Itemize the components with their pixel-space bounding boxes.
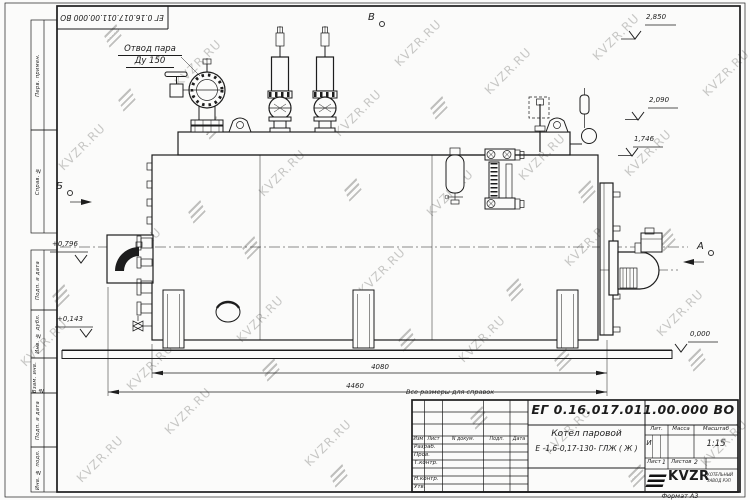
level-0143: +0,143 (57, 316, 83, 323)
mass-header: Масса (668, 427, 694, 433)
doc-number: ЕГ 0.16.017.011.00.000 ВО (530, 403, 736, 416)
kvzr-logo-sub2: ЗАВОД РЭП (707, 479, 731, 483)
view-label-b-mark (67, 190, 73, 196)
row-utv: Утв. (414, 485, 426, 491)
view-label-a-mark (708, 250, 714, 256)
lit-header: Лит. (645, 427, 668, 433)
view-label-v: В (368, 13, 375, 24)
lit-value: И (645, 440, 653, 447)
steam-outlet-callout-line2: Ду 150 (126, 57, 174, 68)
product-name-line2: Е -1,6-0,17-130- ГЛЖ ( Ж ) (528, 445, 645, 453)
water-level-gauge (485, 149, 524, 209)
view-label-a: А (697, 242, 704, 253)
level-1746: 1,746 (634, 136, 654, 143)
pressure-siphon (570, 88, 597, 144)
drawing-linework (0, 0, 750, 500)
safety-valve-1 (268, 26, 292, 135)
manhole (216, 302, 240, 322)
sheet-number: 1 (662, 460, 666, 466)
steam-outlet-valve (165, 57, 225, 135)
elevation-marks (50, 25, 718, 352)
frame-col-podp-data-1: Подп. и дата (31, 250, 44, 310)
view-label-b: Б (56, 182, 63, 193)
ground-line (62, 350, 672, 359)
sheets-label: Листов (671, 460, 692, 466)
frame-col-inv-dubl: Инв. № дубл. (31, 310, 44, 358)
row-prov: Пров. (414, 453, 430, 459)
scale-value: 1:15 (694, 440, 738, 449)
view-label-v-mark (379, 21, 385, 27)
support-skids (163, 290, 578, 348)
separator-vessel (445, 148, 464, 204)
kvzr-logo-text: KVZR (668, 470, 710, 484)
scale-header: Масштаб (694, 427, 738, 433)
col-header-data: Дата (510, 437, 528, 442)
frame-col-vzam-inv: Взам. инв. № (31, 358, 44, 393)
top-reversed-stamp: ЕГ 0.16.017.011.00.000 ВО (57, 7, 167, 28)
format-label: Формат А3 (648, 493, 712, 500)
frame-col-inv-podl: Инв. № подл. (31, 447, 44, 492)
dim-4460: 4460 (325, 383, 385, 390)
thermometer (529, 97, 549, 152)
level-0796: +0,796 (52, 241, 78, 248)
view-arrow-a (683, 259, 704, 265)
steam-outlet-callout-line1: Отвод пара (118, 45, 182, 56)
frame-col-podp-data-2: Подп. и дата (31, 393, 44, 447)
dim-4080: 4080 (350, 364, 410, 371)
reference-note: Все размеры для справок (406, 389, 480, 396)
sheets-total: 2 (694, 460, 698, 466)
product-name-line1: Котел паровой (528, 430, 645, 439)
frame-col-sprav-no: Справ. № (31, 130, 44, 233)
col-header-ndoc: N докум. (443, 437, 484, 442)
col-header-izm: Изм (412, 437, 425, 442)
safety-valve-2 (313, 26, 337, 135)
row-nkontr: Н.контр. (414, 477, 439, 483)
col-header-podp: Подп. (484, 437, 511, 442)
row-tkontr: Т.контр. (414, 461, 438, 467)
col-header-list: Лист (425, 437, 443, 442)
frame-col-perv-primen: Перв. примен. (31, 20, 44, 130)
level-2850: 2,850 (646, 14, 666, 21)
level-0000: 0,000 (690, 331, 710, 338)
sheet-label: Лист (647, 460, 661, 466)
drawing-sheet: KVZR.RUKVZR.RUKVZR.RUKVZR.RUKVZR.RUKVZR.… (0, 0, 750, 500)
row-razrab: Разраб. (414, 445, 436, 451)
view-arrow-b (70, 199, 92, 205)
kvzr-logo-sub1: КОТЕЛЬНЫЙ (707, 473, 733, 477)
level-2090: 2,090 (649, 97, 669, 104)
